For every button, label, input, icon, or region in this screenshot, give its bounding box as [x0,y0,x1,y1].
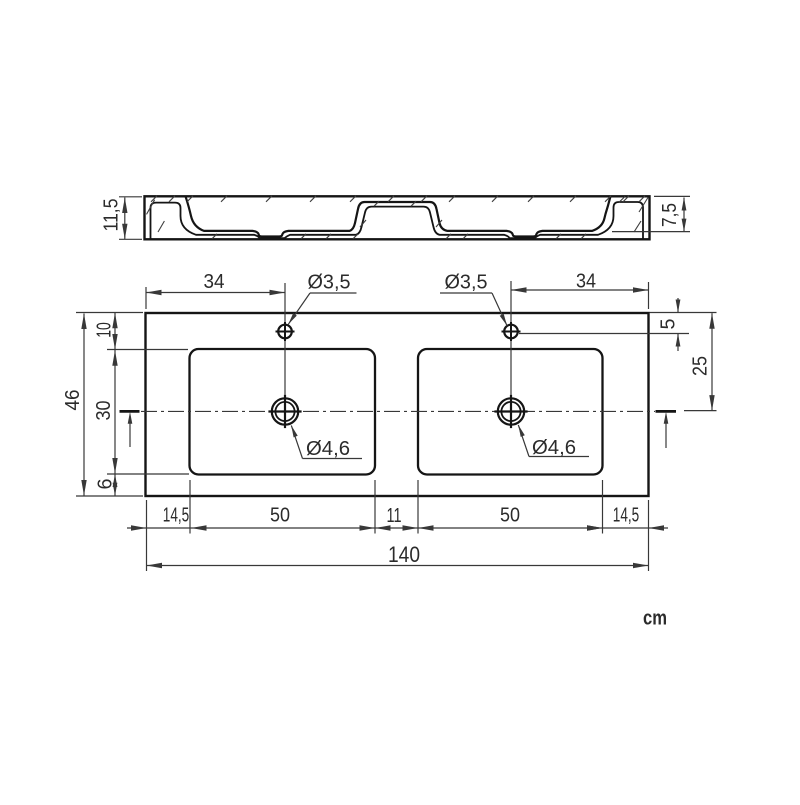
svg-text:cm: cm [643,608,667,630]
svg-text:34: 34 [204,271,225,293]
svg-text:50: 50 [270,505,290,527]
svg-text:Ø4,6: Ø4,6 [306,438,350,460]
svg-text:10: 10 [94,322,116,338]
svg-text:5: 5 [658,319,680,330]
svg-text:34: 34 [576,271,596,293]
svg-text:6: 6 [95,479,117,490]
svg-text:46: 46 [62,390,84,411]
svg-text:14,5: 14,5 [613,505,640,527]
svg-text:25: 25 [690,356,712,376]
svg-text:Ø3,5: Ø3,5 [308,272,351,294]
svg-text:7,5: 7,5 [659,203,681,227]
svg-text:11: 11 [387,505,402,527]
svg-text:50: 50 [500,505,520,527]
svg-text:11,5: 11,5 [101,199,123,232]
svg-text:Ø4,6: Ø4,6 [532,437,576,459]
svg-text:30: 30 [93,401,115,421]
svg-text:14,5: 14,5 [163,505,190,527]
svg-text:140: 140 [388,542,420,567]
svg-text:Ø3,5: Ø3,5 [445,272,488,294]
